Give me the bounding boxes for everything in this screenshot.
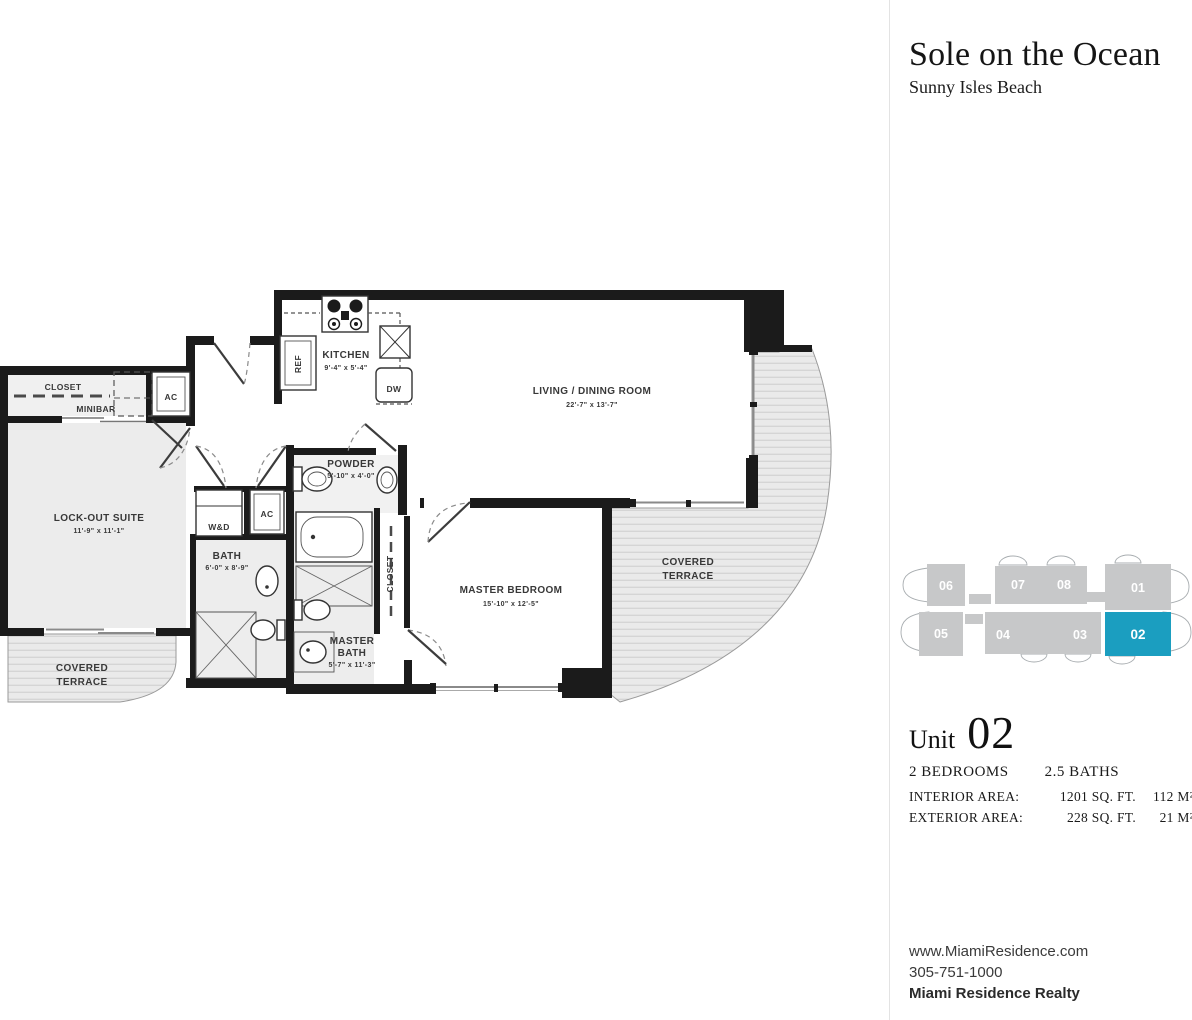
lockout-label: LOCK-OUT SUITE: [54, 513, 145, 524]
keyplan-label-01: 01: [1131, 581, 1145, 595]
bath-dims: 6'-0" x 8'-9": [205, 565, 248, 572]
company-text: Miami Residence Realty: [909, 983, 1088, 1004]
building-title: Sole on the Ocean: [909, 36, 1161, 74]
interior-area-label: INTERIOR AREA:: [909, 789, 1034, 805]
lockout-dims: 11'-9" x 11'-1": [74, 528, 125, 535]
building-subtitle: Sunny Isles Beach: [909, 77, 1161, 98]
kitchen-label: KITCHEN: [322, 350, 369, 361]
keyplan-label-04: 04: [996, 628, 1010, 642]
building-key-plan: 06 07 08 01 05 04 03 02: [899, 552, 1192, 676]
keyplan-label-06: 06: [939, 579, 953, 593]
powder-toilet-icon: [293, 467, 332, 491]
interior-area-metric: 112 M²: [1136, 789, 1192, 805]
keyplan-label-03: 03: [1073, 628, 1087, 642]
minibar-label: MINIBAR: [76, 404, 115, 414]
kitchen-sink-icon: [380, 326, 410, 358]
master-bedroom-label: MASTER BEDROOM: [460, 585, 563, 596]
living-label: LIVING / DINING ROOM: [533, 386, 652, 397]
terrace-right-label1: COVERED: [662, 557, 714, 568]
bath-toilet-icon: [251, 620, 285, 640]
living-dims: 22'-7" x 13'-7": [566, 402, 618, 409]
exterior-area-metric: 21 M²: [1136, 810, 1192, 826]
terrace-left-label1: COVERED: [56, 663, 108, 674]
keyplan-label-02: 02: [1130, 627, 1145, 642]
ref-label: REF: [293, 355, 303, 373]
ac-hall-label: AC: [260, 509, 273, 519]
exterior-area-sqft: 228 SQ. FT.: [1034, 810, 1136, 826]
unit-specs: 2 BEDROOMS 2.5 BATHS: [909, 764, 1119, 781]
interior-area-sqft: 1201 SQ. FT.: [1034, 789, 1136, 805]
phone-text: 305-751-1000: [909, 962, 1088, 983]
powder-sink-icon: [377, 467, 397, 493]
unit-heading: Unit 02: [909, 706, 1015, 759]
website-text: www.MiamiResidence.com: [909, 941, 1088, 962]
powder-label: POWDER: [327, 459, 375, 470]
master-bedroom-dims: 15'-10" x 12'-5": [483, 601, 539, 608]
powder-dims: 5'-10" x 4'-0": [327, 473, 374, 480]
keyplan-label-07: 07: [1011, 578, 1025, 592]
master-closet-label: CLOSET: [385, 555, 395, 592]
master-bath-label1: MASTER: [330, 636, 375, 647]
baths-text: 2.5 BATHS: [1045, 764, 1120, 781]
unit-word: Unit: [909, 725, 955, 755]
unit-number: 02: [967, 706, 1015, 759]
brand-block: Sole on the Ocean Sunny Isles Beach: [909, 36, 1161, 98]
covered-terrace-right-area: [610, 349, 831, 702]
brochure-page: CLOSET MINIBAR AC LOCK-OUT SUITE 11'-9" …: [0, 0, 1192, 1020]
dw-label: DW: [387, 384, 403, 394]
terrace-left-label2: TERRACE: [56, 677, 107, 688]
entry-closet-label: CLOSET: [45, 382, 82, 392]
bath-sink-icon: [256, 566, 278, 596]
stove-icon: [322, 296, 368, 332]
bath-label: BATH: [213, 551, 242, 562]
bedrooms-text: 2 BEDROOMS: [909, 764, 1009, 781]
info-panel: Sole on the Ocean Sunny Isles Beach: [889, 0, 1191, 1020]
kitchen-dims: 9'-4" x 5'-4": [324, 365, 367, 372]
keyplan-label-08: 08: [1057, 578, 1071, 592]
terrace-right-label2: TERRACE: [662, 571, 713, 582]
bathtub-icon: [296, 512, 372, 562]
master-bath-dims: 5'-7" x 11'-3": [328, 662, 375, 669]
lockout-suite-floor: [8, 423, 186, 628]
floorplan-drawing: CLOSET MINIBAR AC LOCK-OUT SUITE 11'-9" …: [0, 0, 892, 1020]
exterior-area-label: EXTERIOR AREA:: [909, 810, 1034, 826]
ac-entry-label: AC: [164, 392, 177, 402]
master-toilet-icon: [294, 600, 330, 620]
keyplan-label-05: 05: [934, 627, 948, 641]
wd-label: W&D: [208, 522, 230, 532]
master-bath-label2: BATH: [338, 648, 367, 659]
contact-block: www.MiamiResidence.com 305-751-1000 Miam…: [909, 941, 1088, 1004]
area-table: INTERIOR AREA: 1201 SQ. FT. 112 M² EXTER…: [909, 789, 1192, 826]
